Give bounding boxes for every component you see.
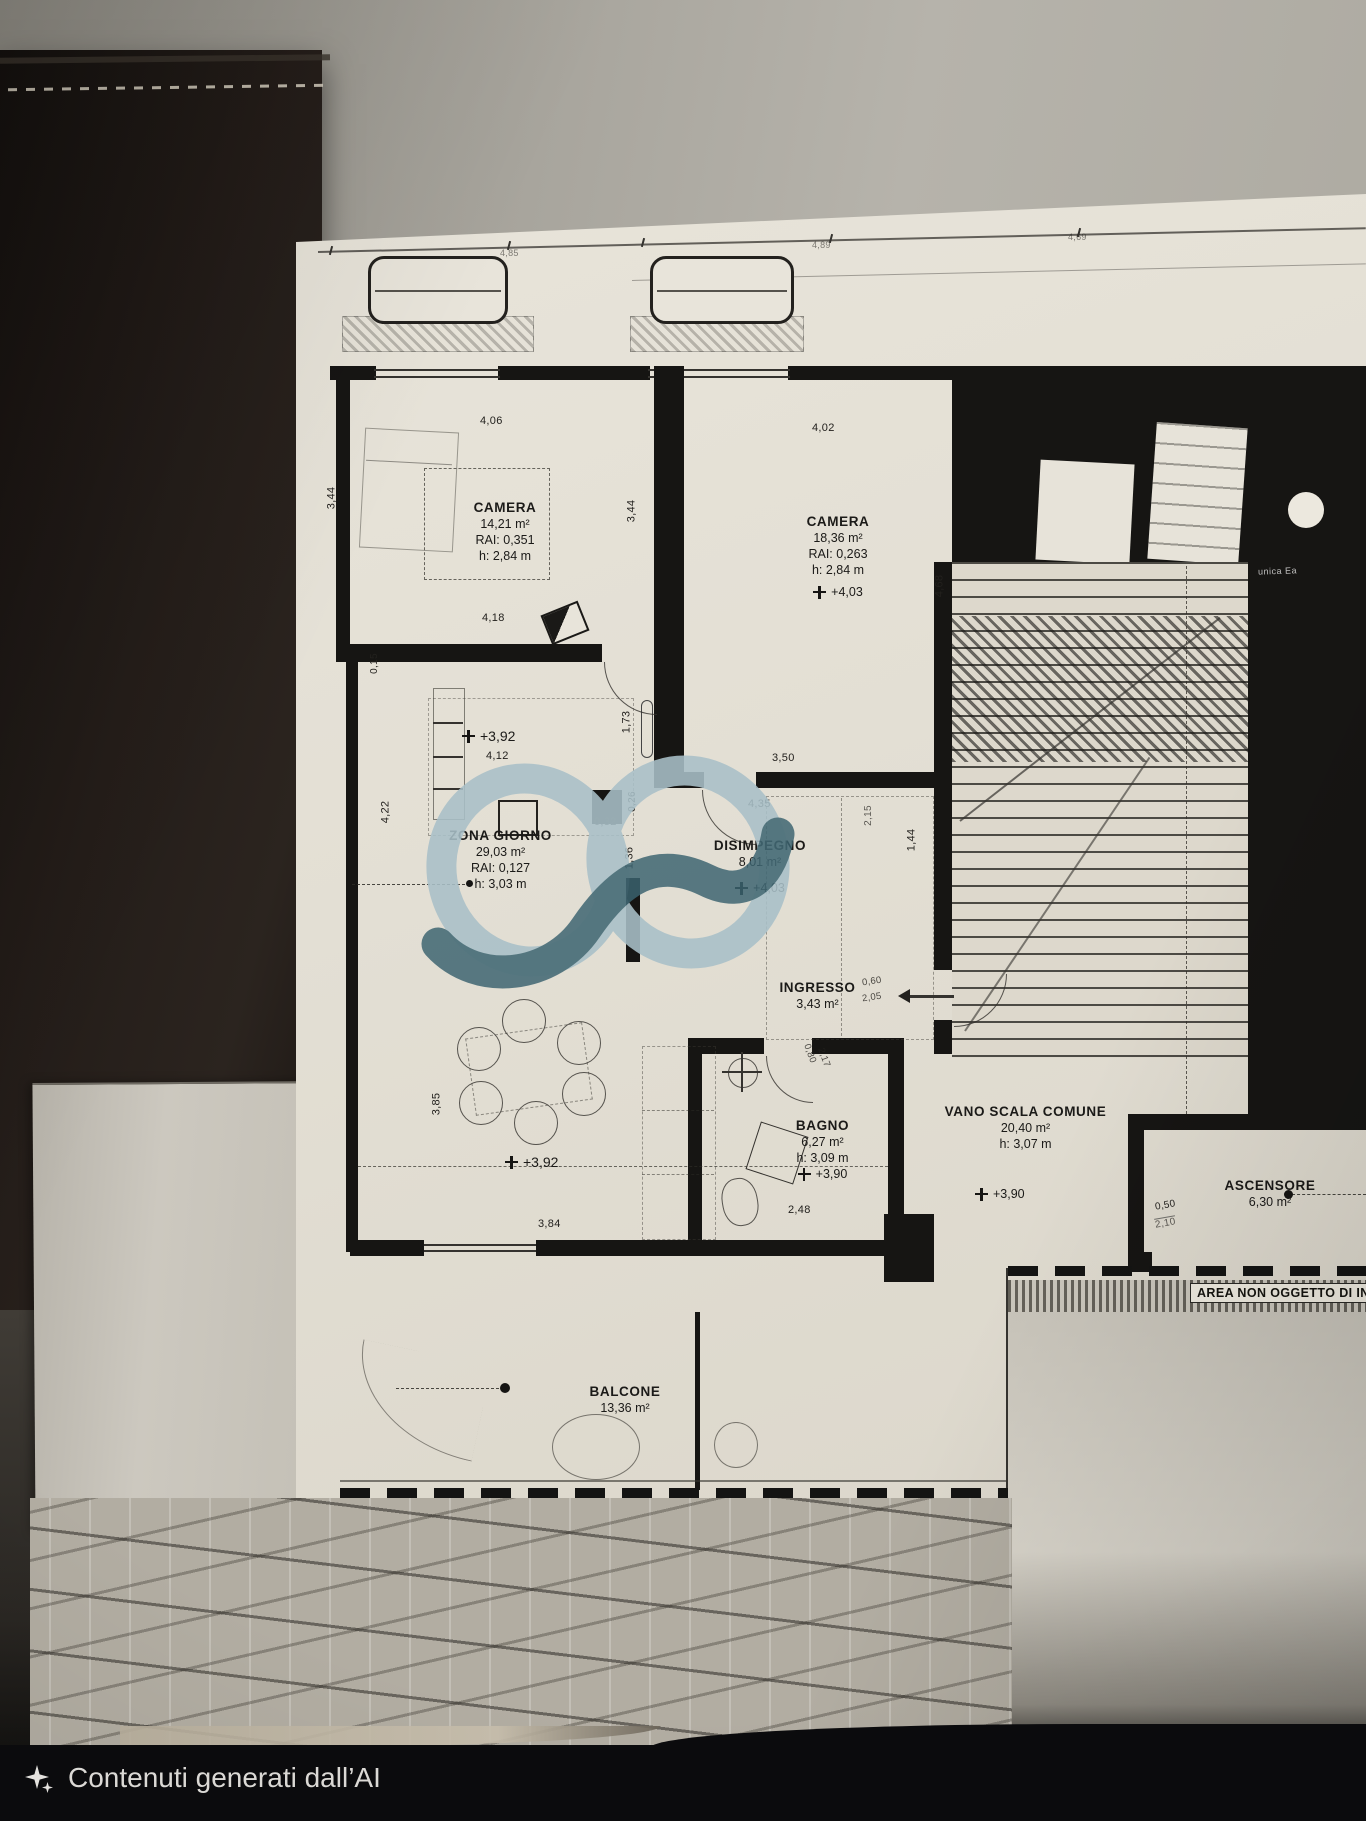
washbasin-axis	[722, 1071, 762, 1073]
level-mark-icon	[462, 730, 475, 743]
paper-fragment	[1147, 422, 1247, 565]
room-area: 6,30 m²	[1180, 1194, 1360, 1210]
wardrobe	[642, 1046, 716, 1240]
level-mark-icon	[798, 1168, 811, 1181]
ai-caption: Contenuti generati dall’AI	[24, 1762, 381, 1794]
room-height: h: 2,84 m	[758, 562, 918, 578]
wall	[654, 366, 684, 788]
room-height: h: 3,09 m	[745, 1150, 900, 1166]
wall	[934, 1020, 952, 1054]
paving-texture	[30, 1498, 1012, 1748]
room-quota: +3,90	[816, 1166, 848, 1182]
stairs-divider	[1186, 566, 1187, 1114]
entrance-arrow-head	[898, 989, 910, 1003]
room-label-vano-scala: VANO SCALA COMUNE 20,40 m² h: 3,07 m	[928, 1104, 1123, 1152]
quota-row: +3,90	[798, 1166, 848, 1182]
dim-4-22: 4,22	[379, 801, 391, 824]
room-rai: RAI: 0,351	[425, 532, 585, 548]
balcony-curve	[343, 1339, 491, 1461]
room-name: CAMERA	[425, 500, 585, 516]
dim-1-73: 1,73	[620, 711, 632, 734]
wall	[498, 366, 650, 380]
area-note-label: AREA NON OGGETTO DI INT	[1190, 1283, 1366, 1303]
washbasin	[728, 1058, 758, 1088]
window-line	[424, 1244, 536, 1246]
wall	[934, 562, 952, 970]
chair	[557, 1021, 601, 1065]
dim-2-48: 2,48	[788, 1204, 811, 1216]
door-label-ascensore-h: 2,10	[1154, 1215, 1176, 1230]
wall	[688, 1240, 904, 1256]
room-area: 6,27 m²	[745, 1134, 900, 1150]
room-name: ASCENSORE	[1180, 1178, 1360, 1194]
paper-fragment	[1035, 460, 1134, 565]
nightstand	[540, 601, 589, 646]
chair	[514, 1101, 558, 1145]
kitchen-divider	[433, 722, 463, 724]
dim-3-44-inner: 3,44	[625, 500, 637, 523]
quota-row: +4,03	[813, 584, 863, 600]
chair	[562, 1072, 606, 1116]
dim-3-84: 3,84	[538, 1218, 561, 1230]
balcony-chair	[714, 1422, 758, 1468]
wall	[1128, 1130, 1144, 1270]
wall	[1128, 1114, 1366, 1130]
room-label-camera-1: CAMERA 14,21 m² RAI: 0,351 h: 2,84 m	[425, 500, 585, 564]
room-label-ascensore: ASCENSORE 6,30 m²	[1180, 1178, 1360, 1210]
room-quota: +4,03	[831, 584, 863, 600]
dim-label-top: 4,85	[500, 248, 519, 258]
zona-giorno-lower-quota: +3,92	[505, 1154, 558, 1170]
micro-watermark-text: unica Ea	[1258, 565, 1297, 576]
chair	[459, 1081, 503, 1125]
level-mark-icon	[505, 1156, 518, 1169]
window-line	[424, 1250, 536, 1252]
window-line	[374, 369, 500, 371]
photo-of-floor-plan: 4,85 4,89 4,69	[0, 0, 1366, 1821]
blacked-out-area	[1248, 562, 1366, 1118]
chair	[502, 999, 546, 1043]
wall	[536, 1240, 692, 1256]
door-arc	[766, 1056, 813, 1103]
hole-punch	[1288, 492, 1324, 528]
room-height: h: 3,07 m	[928, 1136, 1123, 1152]
dim-3-44-left: 3,44	[325, 487, 337, 510]
paper-lower-right	[1008, 1312, 1366, 1748]
room-area: 14,21 m²	[425, 516, 585, 532]
balcony-edge-dashes	[340, 1488, 1010, 1498]
caption-text: Contenuti generati dall’AI	[68, 1762, 381, 1794]
wardrobe-shelf	[642, 1174, 714, 1175]
dim-3-85: 3,85	[430, 1093, 442, 1116]
sparkles-icon	[24, 1763, 54, 1793]
underlying-sheet	[32, 1081, 335, 1533]
balcony-table	[552, 1414, 640, 1480]
room-area: 13,36 m²	[545, 1400, 705, 1416]
watermark-logo	[420, 742, 810, 992]
room-label-bagno: BAGNO 6,27 m² h: 3,09 m +3,90	[745, 1118, 900, 1185]
dim-2-15: 2,15	[863, 805, 874, 826]
dim-4-18: 4,18	[482, 612, 505, 624]
room-area: 18,36 m²	[758, 530, 918, 546]
room-label-balcone: BALCONE 13,36 m²	[545, 1384, 705, 1416]
wall	[346, 652, 358, 1252]
wardrobe-shelf	[642, 1110, 714, 1111]
dim-label-top: 4,89	[812, 240, 831, 250]
dim-4-68: 4,68	[933, 575, 945, 598]
dim-0-15: 0,15	[369, 653, 380, 674]
entrance-arrow-shaft	[906, 995, 954, 998]
room-height: h: 2,84 m	[425, 548, 585, 564]
door-label-ascensore-w: 0,50	[1154, 1198, 1176, 1212]
dim-4-06: 4,06	[480, 415, 503, 427]
leader-line	[396, 1388, 504, 1389]
quota-value: +3,92	[523, 1154, 558, 1170]
room-label-camera-2: CAMERA 18,36 m² RAI: 0,263 h: 2,84 m +4,…	[758, 514, 918, 603]
dim-tick	[641, 238, 645, 247]
dim-label-top: 4,69	[1068, 232, 1087, 242]
boundary-dashes	[1008, 1266, 1366, 1276]
wall	[350, 644, 602, 662]
dim-1-44: 1,44	[905, 829, 917, 852]
room-rai: RAI: 0,263	[758, 546, 918, 562]
room-name: BAGNO	[745, 1118, 900, 1134]
level-mark-icon	[975, 1188, 988, 1201]
wall	[788, 366, 966, 380]
level-mark-icon	[813, 586, 826, 599]
wall	[350, 1240, 424, 1256]
room-name: CAMERA	[758, 514, 918, 530]
leader-dot	[500, 1383, 510, 1393]
dim-4-02: 4,02	[812, 422, 835, 434]
room-area: 20,40 m²	[928, 1120, 1123, 1136]
vano-scala-quota: +3,90	[975, 1186, 1025, 1202]
room-name: BALCONE	[545, 1384, 705, 1400]
balcony-edge-line	[340, 1480, 1010, 1482]
window-line	[374, 376, 500, 378]
wall	[336, 366, 350, 662]
room-quota: +3,90	[993, 1186, 1025, 1202]
window-fixture	[650, 256, 794, 324]
chair	[457, 1027, 501, 1071]
stairs-hatch	[952, 616, 1248, 762]
room-name: VANO SCALA COMUNE	[928, 1104, 1123, 1120]
window-fixture	[368, 256, 508, 324]
